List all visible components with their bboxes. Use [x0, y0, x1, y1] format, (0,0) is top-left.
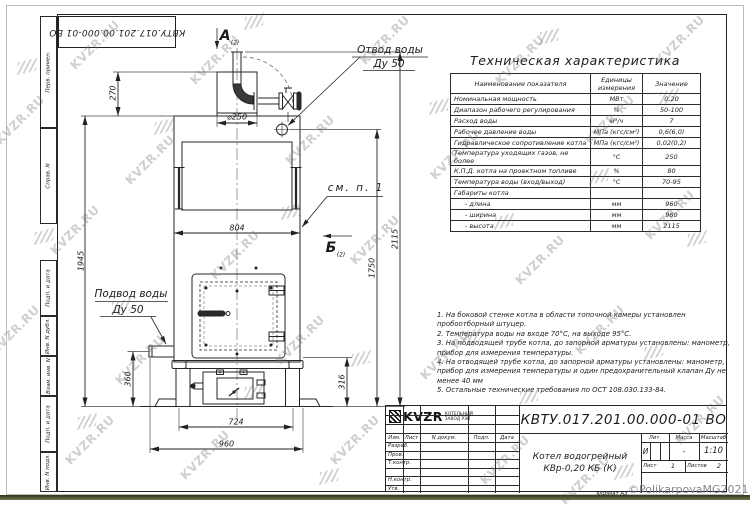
table-row: Температура уходящих газов, не более°С25… — [451, 149, 701, 166]
sheet-label: Лист — [643, 460, 663, 472]
table-cell: 0,6(6,0) — [643, 127, 701, 138]
note-item: 5. Остальные технические требования по О… — [437, 386, 730, 395]
table-cell: 0,20 — [643, 94, 701, 105]
scale-label: Масштаб — [699, 433, 728, 442]
table-cell: мм — [591, 199, 643, 210]
note-item: 4. На отводящей трубе котла, до запорной… — [437, 358, 730, 386]
table-cell: % — [591, 166, 643, 177]
spec-header-units: Единицы измерения — [591, 74, 643, 94]
kvzr-logo-icon — [389, 410, 401, 423]
table-cell: Гидравлическое сопротивление котла — [451, 138, 591, 149]
outlet-label-line1: Отвод воды — [357, 44, 423, 56]
sheet-value: 1 — [664, 460, 682, 472]
signature-row-label: Пров. — [388, 451, 420, 460]
table-cell: 7 — [643, 116, 701, 127]
spec-table-title: Техническая характеристика — [450, 53, 700, 68]
table-cell: °С — [591, 149, 643, 166]
table-cell: 960 — [643, 199, 701, 210]
lit-value: И — [641, 442, 650, 460]
view-marker-b-sub: (2) — [337, 252, 346, 259]
table-row: Расход водым³/ч7 — [451, 116, 701, 127]
signature-row-label: Утв. — [388, 485, 420, 494]
dim-360: 360 — [123, 371, 132, 386]
title-block-doc-number: КВТУ.017.201.00.000-01 ВО — [519, 406, 728, 433]
spec-table-body: Номинальная мощностьМВт0,20Диапазон рабо… — [451, 94, 701, 232]
signature-row-label: Т.контр. — [388, 459, 420, 468]
technical-notes: 1. На боковой стенке котла в области топ… — [437, 311, 730, 396]
table-cell: 2115 — [643, 221, 701, 232]
table-cell: МПа (кгс/см²) — [591, 138, 643, 149]
table-cell: Температура уходящих газов, не более — [451, 149, 591, 166]
table-cell: 960 — [643, 210, 701, 221]
dim-316: 316 — [338, 374, 347, 389]
title-block: Изм.ЛистN докум.Подп.ДатаРазраб.Пров.Т.к… — [385, 405, 727, 492]
view-marker-b: Б — [326, 240, 337, 256]
mass-label: Масса — [669, 433, 699, 442]
table-row: Диапазон рабочего регулирования%50-100 — [451, 105, 701, 116]
kvzr-logo-text: KVZR — [403, 409, 443, 424]
mass-value: - — [669, 442, 699, 460]
change-table-header: N докум. — [420, 433, 468, 442]
change-table-header: Изм. — [386, 433, 403, 442]
change-table-header: Дата — [495, 433, 519, 442]
dim-2115: 2115 — [390, 229, 399, 249]
product-name: Котел водогрейный КВр-0,20 КБ (К) — [519, 433, 641, 493]
table-cell: - высота — [451, 221, 591, 232]
table-cell: 250 — [643, 149, 701, 166]
table-cell: Температура воды (вход/выход) — [451, 177, 591, 188]
spec-header-value: Значение — [643, 74, 701, 94]
table-cell: 0,02(0,2) — [643, 138, 701, 149]
table-cell: 70-95 — [643, 177, 701, 188]
table-cell — [643, 188, 701, 199]
table-cell — [591, 188, 643, 199]
table-row: - длинамм960 — [451, 199, 701, 210]
see-note-callout: см. п. 1 — [328, 182, 385, 194]
table-cell: Номинальная мощность — [451, 94, 591, 105]
sheets-value: 2 — [712, 460, 726, 472]
dim-250: ⌀250 — [227, 113, 247, 122]
product-name-line1: Котел водогрейный — [533, 451, 628, 463]
table-cell: Габариты котла — [451, 188, 591, 199]
signature-row-label: Н.контр. — [388, 476, 420, 485]
spec-header-row: Наименование показателя Единицы измерени… — [451, 74, 701, 94]
view-marker-a-sub: (2) — [231, 40, 240, 47]
table-row: - ширинамм960 — [451, 210, 701, 221]
table-cell: 50-100 — [643, 105, 701, 116]
copyright-watermark: ©PolikarpovaMG2021 — [628, 483, 749, 496]
table-cell: % — [591, 105, 643, 116]
dim-270: 270 — [108, 85, 117, 100]
note-item: 3. На подводящей трубе котла, до запорно… — [437, 339, 730, 358]
table-cell: м³/ч — [591, 116, 643, 127]
dim-1945: 1945 — [76, 251, 85, 271]
table-row: Рабочее давление водыМПа (кгс/см²)0,6(6,… — [451, 127, 701, 138]
table-row: Номинальная мощностьМВт0,20 — [451, 94, 701, 105]
outlet-label-line2: Ду 50 — [373, 58, 404, 70]
lit-label: Лит. — [641, 433, 669, 442]
inlet-label-line1: Подвод воды — [95, 288, 168, 300]
table-cell: Рабочее давление воды — [451, 127, 591, 138]
signature-row-label: Разраб. — [388, 442, 420, 451]
table-cell: мм — [591, 221, 643, 232]
change-table-header: Подп. — [468, 433, 495, 442]
table-row: - высотамм2115 — [451, 221, 701, 232]
table-cell: МВт — [591, 94, 643, 105]
dim-724: 724 — [228, 417, 243, 426]
table-row: Гидравлическое сопротивление котлаМПа (к… — [451, 138, 701, 149]
table-row: Габариты котла — [451, 188, 701, 199]
product-name-line2: КВр-0,20 КБ (К) — [543, 463, 616, 475]
table-cell: 80 — [643, 166, 701, 177]
table-cell: Диапазон рабочего регулирования — [451, 105, 591, 116]
view-marker-a: А — [220, 28, 231, 44]
spec-header-name: Наименование показателя — [451, 74, 591, 94]
table-cell: °С — [591, 177, 643, 188]
note-item: 1. На боковой стенке котла в области топ… — [437, 311, 730, 330]
inlet-label-line2: Ду 50 — [112, 304, 143, 316]
change-table-header: Лист — [403, 433, 420, 442]
table-row: К.П.Д. котла на проектном топливе%80 — [451, 166, 701, 177]
dim-1750: 1750 — [367, 258, 376, 278]
scale-value: 1:10 — [699, 442, 728, 460]
table-cell: К.П.Д. котла на проектном топливе — [451, 166, 591, 177]
dim-960: 960 — [219, 439, 234, 448]
table-cell: мм — [591, 210, 643, 221]
table-cell: - длина — [451, 199, 591, 210]
dim-804: 804 — [229, 223, 244, 232]
sheets-label: Листов — [687, 460, 711, 472]
table-cell: Расход воды — [451, 116, 591, 127]
note-item: 2. Температура воды на входе 70°С, на вы… — [437, 330, 730, 339]
table-cell: МПа (кгс/см²) — [591, 127, 643, 138]
table-cell: - ширина — [451, 210, 591, 221]
table-row: Температура воды (вход/выход)°С70-95 — [451, 177, 701, 188]
spec-table: Наименование показателя Единицы измерени… — [450, 73, 701, 232]
